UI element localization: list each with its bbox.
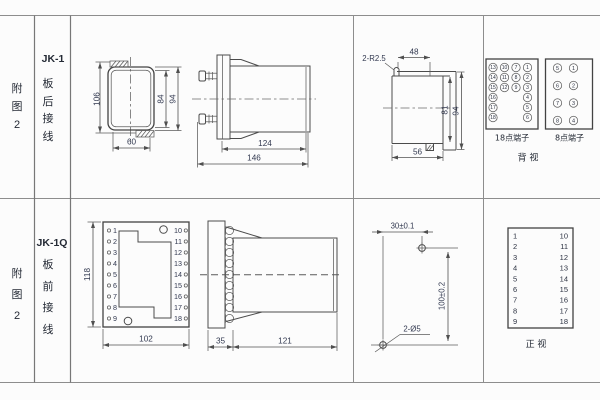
pin-left: 4 <box>113 259 117 268</box>
case-rear-view-drawing: 106 84 94 60 <box>93 57 182 152</box>
t18-n: 14 <box>490 75 496 81</box>
side-view-bottom-drawing: 35 121 <box>200 221 342 351</box>
t18-n: 5 <box>526 105 529 111</box>
t18-n: 1 <box>526 65 529 71</box>
pin-right: 15 <box>174 281 182 290</box>
dim-106: 106 <box>93 92 102 106</box>
fv-right: 10 <box>560 232 568 241</box>
pin-left: 9 <box>113 314 117 323</box>
pin-left: 1 <box>113 226 117 235</box>
pin-right: 13 <box>174 259 182 268</box>
holes-note: 2-Ø5 <box>403 325 421 334</box>
fv-right: 18 <box>560 317 568 326</box>
wiring-face-drawing: 1 2 3 4 5 6 7 8 9 10 11 12 13 14 15 16 1… <box>83 222 189 349</box>
pin-left: 6 <box>113 281 117 290</box>
fv-right: 16 <box>560 296 568 305</box>
fv-right: 12 <box>560 253 568 262</box>
pin-right: 10 <box>174 226 182 235</box>
t18-n: 10 <box>502 65 508 71</box>
dim-35: 35 <box>216 337 226 346</box>
dim-56: 56 <box>413 148 423 157</box>
fv-right: 14 <box>560 274 568 283</box>
fv-left: 6 <box>513 285 517 294</box>
panel-cutout-drawing: 48 2-R2.5 81 94 56 <box>362 48 464 162</box>
dim-81: 81 <box>441 105 450 115</box>
dim-48: 48 <box>409 48 419 57</box>
terminal-block-18: 13 14 15 16 17 18 10 11 12 7 8 9 1 2 3 4… <box>486 59 538 143</box>
dim-121: 121 <box>278 337 292 346</box>
pin-left: 8 <box>113 303 117 312</box>
t18-n: 16 <box>490 95 496 101</box>
t8-n: 1 <box>572 66 575 72</box>
t18-n: 17 <box>490 105 496 111</box>
fv-left: 3 <box>513 253 517 262</box>
fv-left: 5 <box>513 274 517 283</box>
fv-left: 9 <box>513 317 517 326</box>
t18-n: 13 <box>490 65 496 71</box>
fv-right: 13 <box>560 264 568 273</box>
case-side-view-drawing: 124 146 <box>192 55 316 168</box>
fv-left: 2 <box>513 242 517 251</box>
t8-n: 5 <box>556 66 559 72</box>
t18-n: 11 <box>502 75 507 81</box>
drawing-canvas: 106 84 94 60 <box>0 0 600 400</box>
dim-100: 100±0.2 <box>438 282 447 310</box>
t18-n: 3 <box>526 85 529 91</box>
fv-right: 11 <box>560 242 568 251</box>
mount-hole <box>160 226 168 234</box>
rear-view-label: 背 视 <box>518 152 539 164</box>
t18-n: 6 <box>526 115 529 121</box>
t18-n: 12 <box>502 85 508 91</box>
fv-right: 17 <box>560 306 568 315</box>
pin-left: 5 <box>113 270 117 279</box>
fv-left: 1 <box>513 232 517 241</box>
t8-n: 7 <box>556 101 559 107</box>
terminal-18-label: 18点端子 <box>495 133 529 143</box>
fv-left: 8 <box>513 306 517 315</box>
terminal-block-8: 5 6 7 8 1 2 3 4 8点端子 <box>546 59 593 143</box>
pin-left: 2 <box>113 237 117 246</box>
pin-right: 11 <box>175 237 182 246</box>
mount-hole <box>124 317 132 325</box>
t18-n: 2 <box>526 75 529 81</box>
drilling-plan-drawing: 30±0.1 100±0.2 2-Ø5 <box>371 222 458 353</box>
dim-146: 146 <box>247 154 261 163</box>
dim-118: 118 <box>83 268 92 281</box>
pin-right: 18 <box>174 314 182 323</box>
dim-94: 94 <box>169 94 178 104</box>
fv-left: 4 <box>513 264 517 273</box>
dim-30: 30±0.1 <box>391 222 415 231</box>
front-view-table: 1 2 3 4 5 6 7 8 9 10 11 12 13 14 15 16 1… <box>508 228 573 350</box>
t18-n: 4 <box>526 95 529 101</box>
front-view-label: 正 视 <box>526 338 547 350</box>
t18-n: 18 <box>490 115 496 121</box>
t8-n: 6 <box>556 84 559 90</box>
dim-60: 60 <box>127 138 137 147</box>
t18-n: 9 <box>515 85 518 91</box>
figure-sheet: 附图2 JK-1 板后接线 附图2 JK-1Q 板前接线 <box>0 0 600 400</box>
dim-102: 102 <box>139 335 153 344</box>
pin-right: 17 <box>174 303 182 312</box>
t18-n: 8 <box>515 75 518 81</box>
t8-n: 2 <box>572 84 575 90</box>
dim-94b: 94 <box>452 106 461 116</box>
pin-right: 12 <box>174 248 182 257</box>
pin-right: 14 <box>174 270 182 279</box>
fv-right: 15 <box>560 285 568 294</box>
t18-n: 7 <box>515 65 518 71</box>
t8-n: 4 <box>572 119 575 125</box>
dim-84: 84 <box>157 94 166 104</box>
pin-right: 16 <box>174 292 182 301</box>
terminal-8-label: 8点端子 <box>555 133 584 143</box>
fv-left: 7 <box>513 296 517 305</box>
t8-n: 8 <box>556 119 559 125</box>
dim-124: 124 <box>258 139 272 148</box>
t8-n: 3 <box>572 101 575 107</box>
radius-note: 2-R2.5 <box>362 54 386 63</box>
pin-left: 3 <box>113 248 117 257</box>
t18-n: 15 <box>490 85 496 91</box>
pin-left: 7 <box>113 292 117 301</box>
